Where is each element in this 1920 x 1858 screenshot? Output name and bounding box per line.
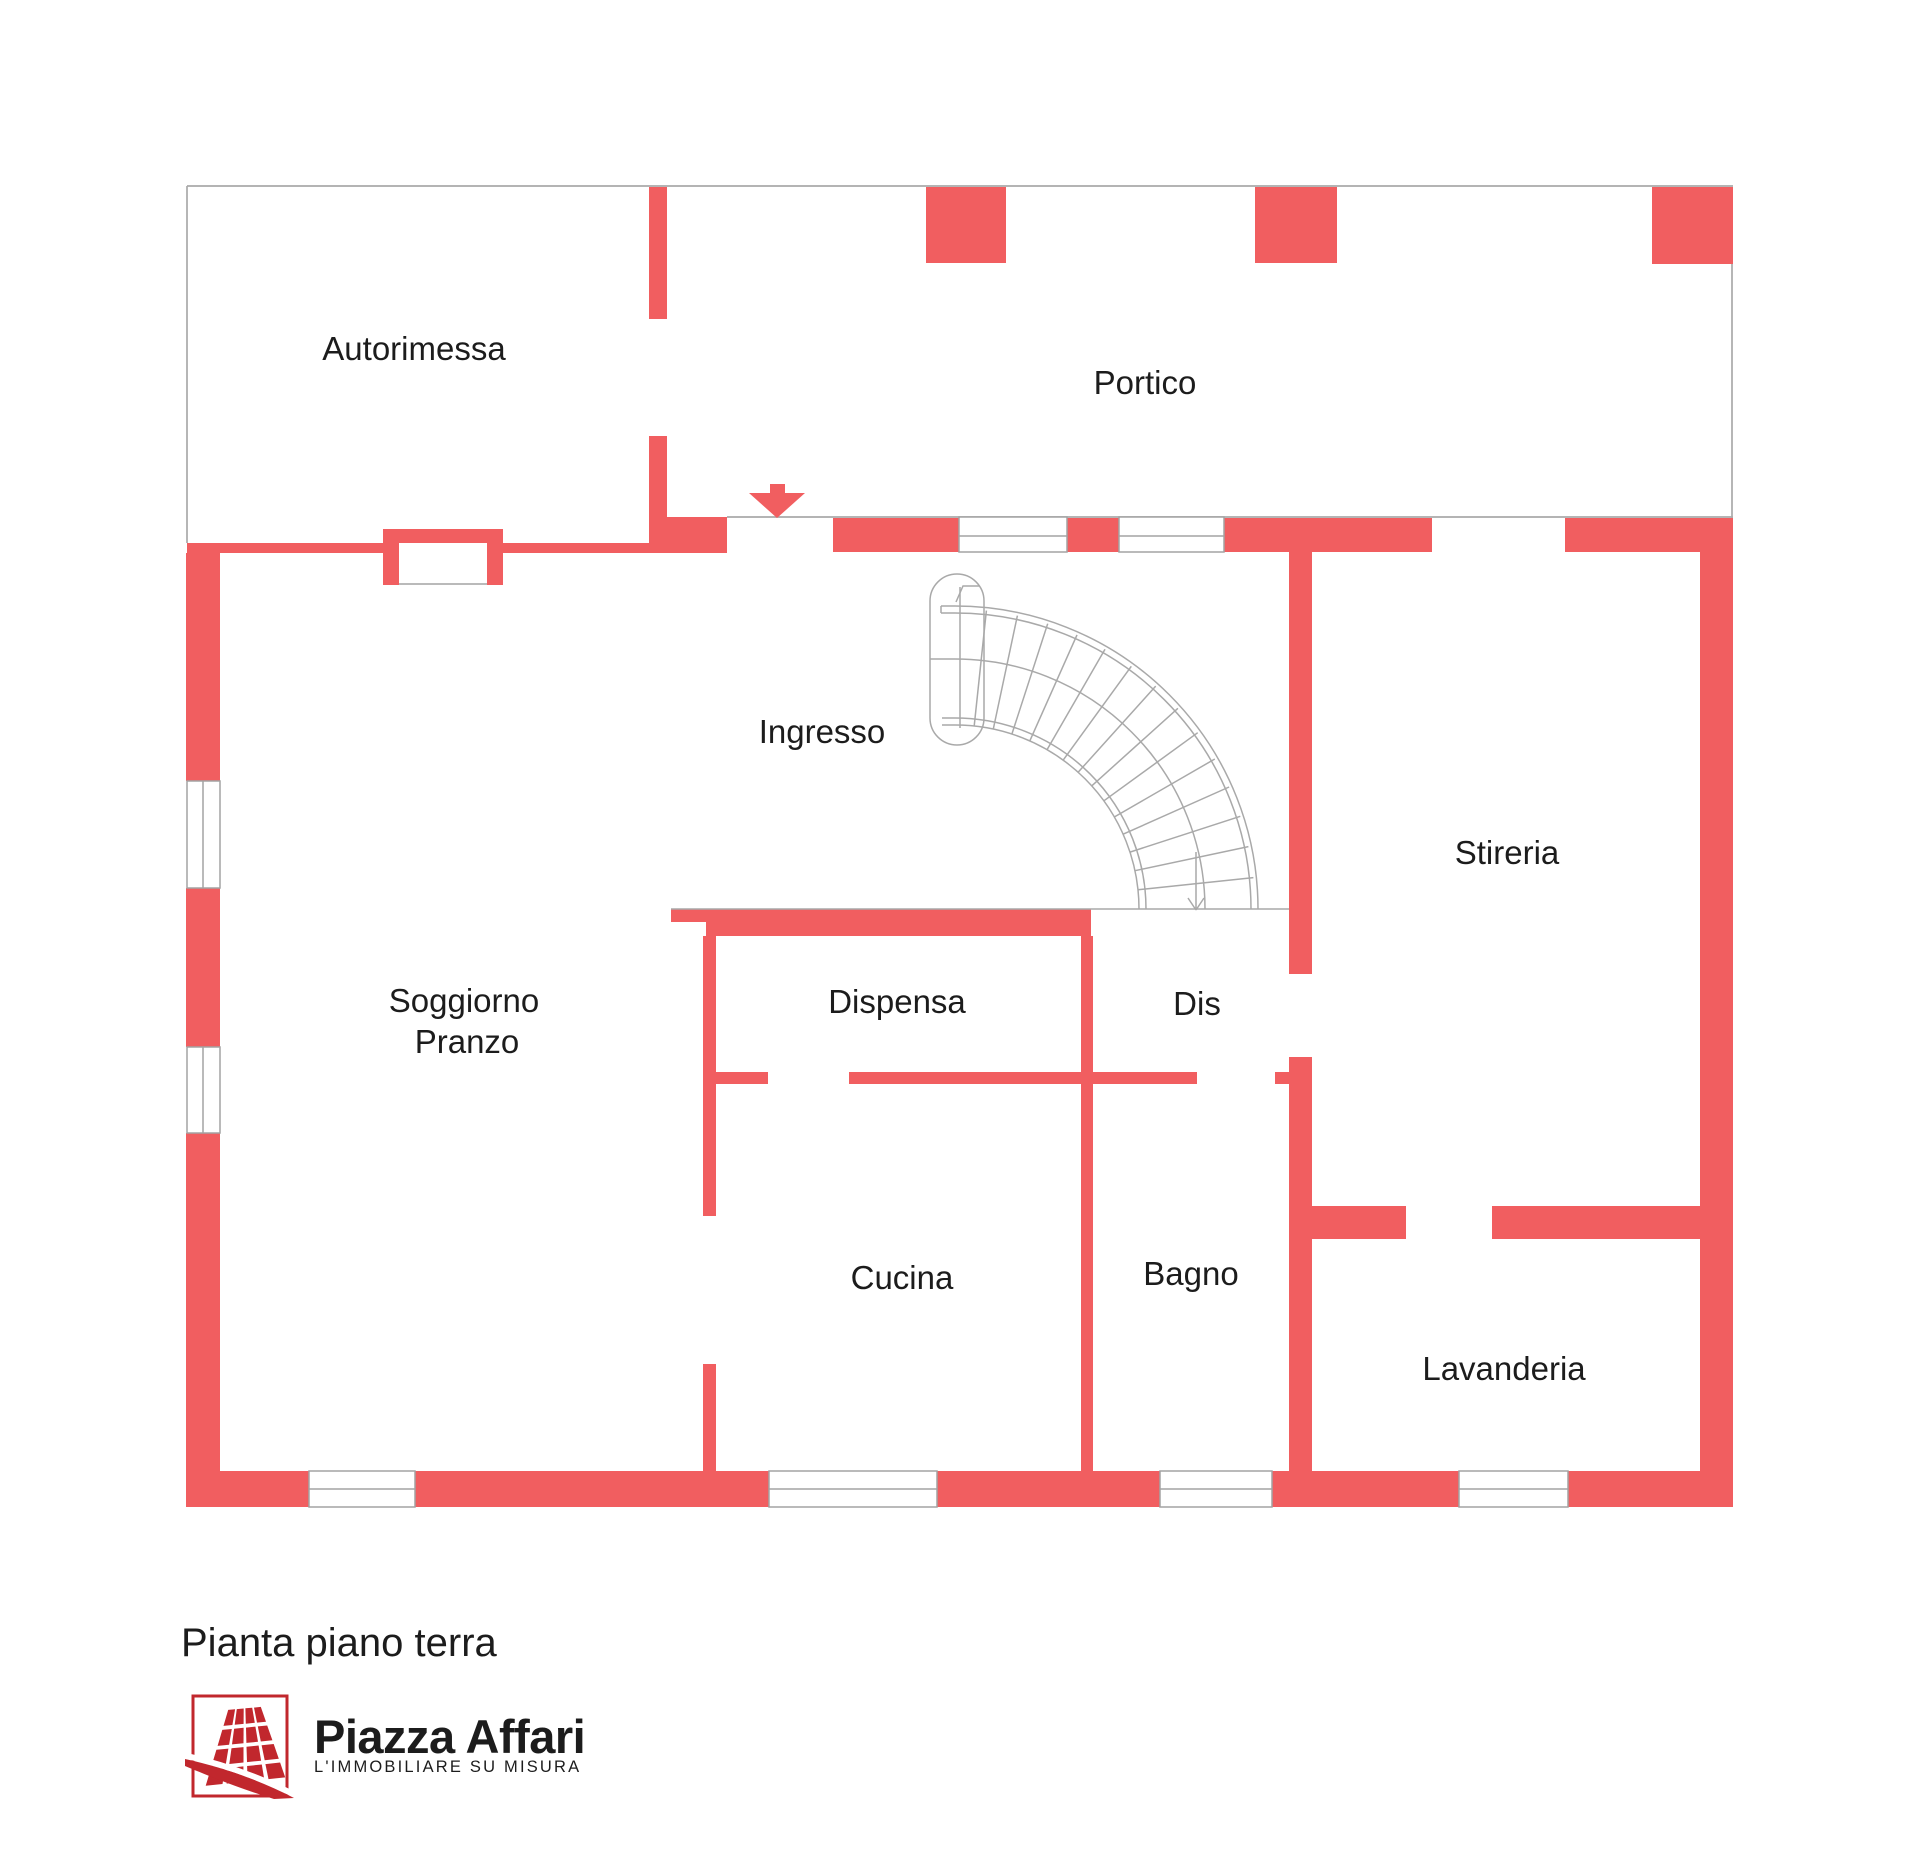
svg-text:Pianta piano terra: Pianta piano terra (181, 1621, 498, 1665)
svg-text:Pranzo: Pranzo (415, 1023, 520, 1060)
svg-text:Ingresso: Ingresso (759, 713, 886, 750)
svg-text:L'IMMOBILIARE SU MISURA: L'IMMOBILIARE SU MISURA (314, 1758, 581, 1776)
svg-text:Portico: Portico (1094, 364, 1197, 401)
svg-text:Autorimessa: Autorimessa (322, 330, 506, 367)
svg-text:Dispensa: Dispensa (828, 983, 966, 1020)
svg-text:Dis: Dis (1173, 985, 1221, 1022)
svg-text:Cucina: Cucina (851, 1259, 954, 1296)
svg-text:Bagno: Bagno (1143, 1255, 1238, 1292)
svg-text:Lavanderia: Lavanderia (1422, 1350, 1586, 1387)
svg-text:Piazza Affari: Piazza Affari (314, 1710, 585, 1763)
svg-text:Soggiorno: Soggiorno (389, 982, 539, 1019)
svg-text:Stireria: Stireria (1455, 834, 1560, 871)
